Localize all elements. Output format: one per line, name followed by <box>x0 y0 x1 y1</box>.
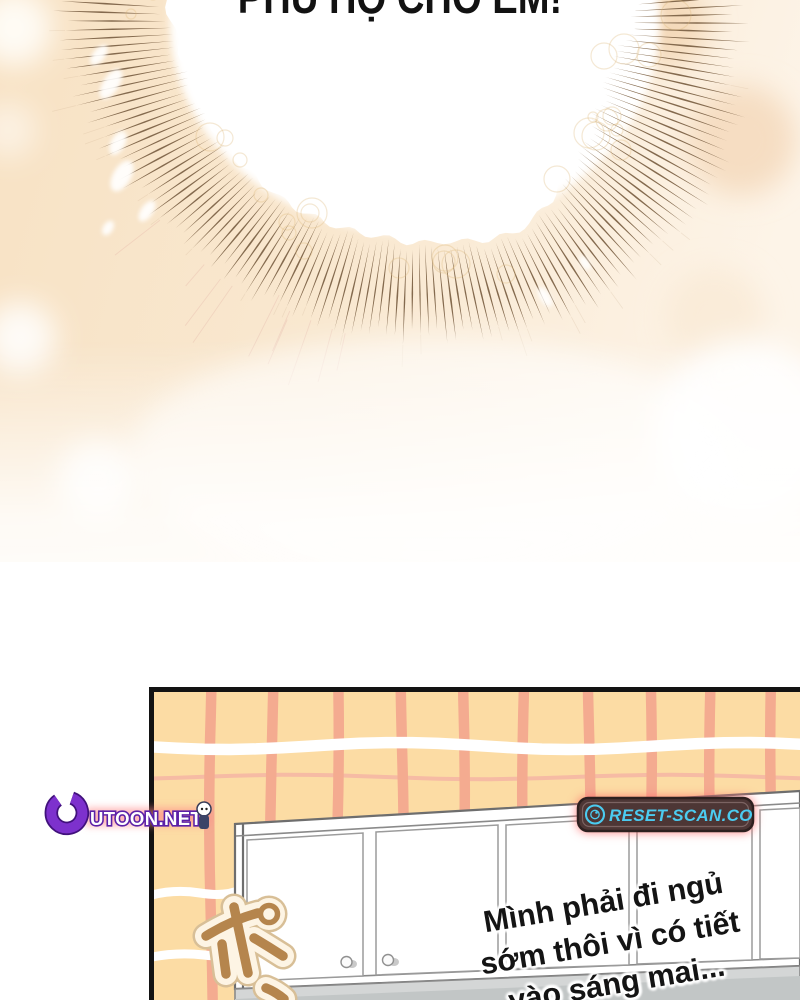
svg-text:UTOON.NET: UTOON.NET <box>90 808 203 829</box>
svg-text:RESET-SCAN.CO: RESET-SCAN.CO <box>609 806 753 825</box>
